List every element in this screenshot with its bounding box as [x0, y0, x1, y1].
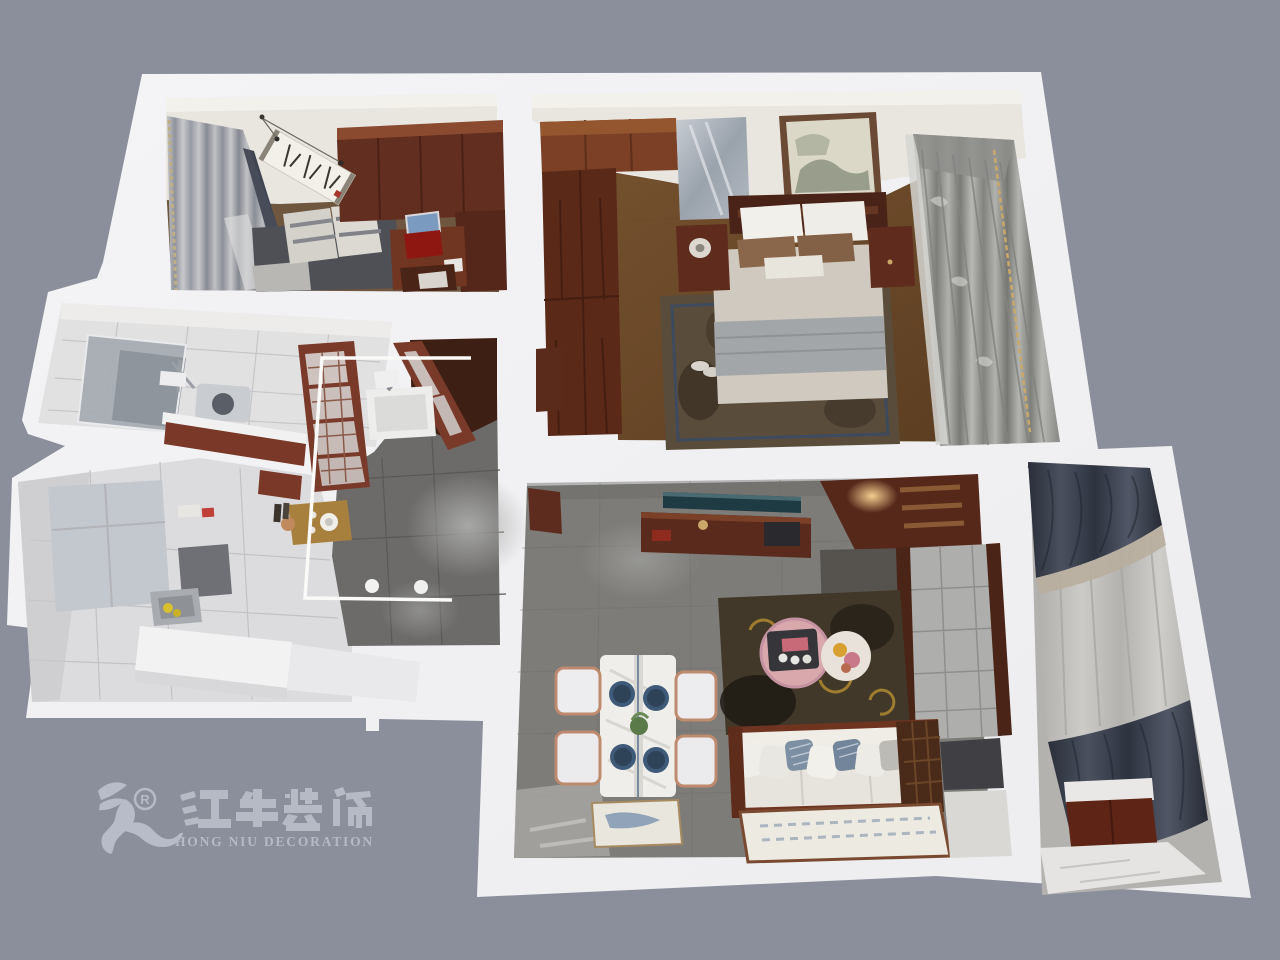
svg-text:R: R	[140, 792, 150, 807]
svg-text:HONG NIU DECORATION: HONG NIU DECORATION	[175, 834, 374, 849]
